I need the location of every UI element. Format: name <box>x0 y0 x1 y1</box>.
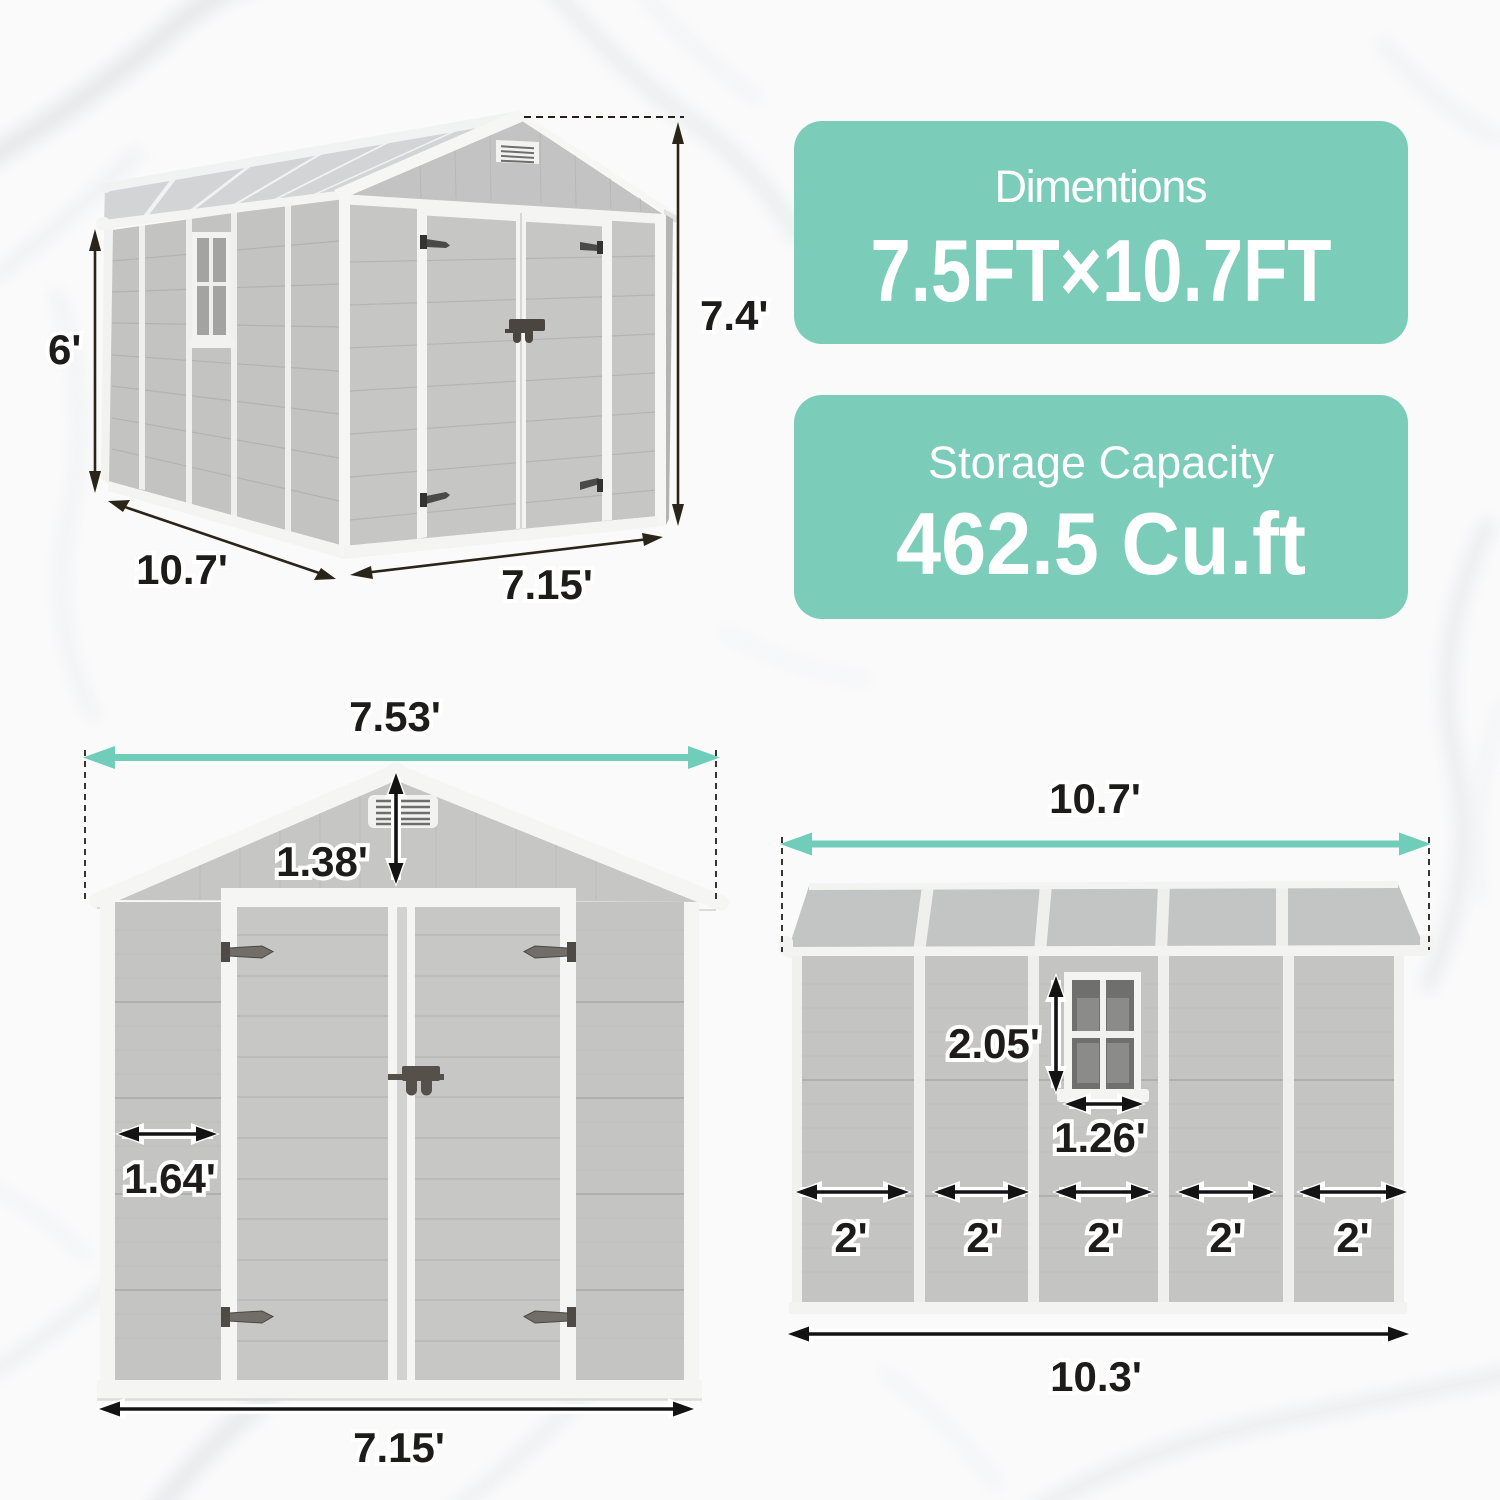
svg-text:10.7': 10.7' <box>1049 775 1141 822</box>
svg-text:7.5FT×10.7FT: 7.5FT×10.7FT <box>871 221 1332 320</box>
svg-text:2': 2' <box>1087 1214 1120 1261</box>
svg-text:7.4': 7.4' <box>700 292 768 339</box>
svg-text:2.05': 2.05' <box>948 1020 1040 1067</box>
svg-text:Dimentions: Dimentions <box>995 161 1208 212</box>
svg-text:2': 2' <box>966 1214 999 1261</box>
svg-text:Storage Capacity: Storage Capacity <box>928 437 1275 488</box>
svg-text:1.26': 1.26' <box>1054 1114 1146 1161</box>
svg-text:10.3': 10.3' <box>1050 1353 1142 1400</box>
svg-text:10.7': 10.7' <box>136 546 228 593</box>
svg-text:7.53': 7.53' <box>349 693 441 740</box>
svg-text:2': 2' <box>834 1214 867 1261</box>
svg-text:7.15': 7.15' <box>501 561 593 608</box>
svg-text:1.38': 1.38' <box>276 838 368 885</box>
svg-text:2': 2' <box>1336 1214 1369 1261</box>
svg-text:7.15': 7.15' <box>353 1424 445 1471</box>
svg-text:2': 2' <box>1209 1214 1242 1261</box>
svg-text:1.64': 1.64' <box>124 1155 216 1202</box>
svg-text:6': 6' <box>48 326 81 373</box>
svg-text:462.5 Cu.ft: 462.5 Cu.ft <box>896 494 1306 593</box>
